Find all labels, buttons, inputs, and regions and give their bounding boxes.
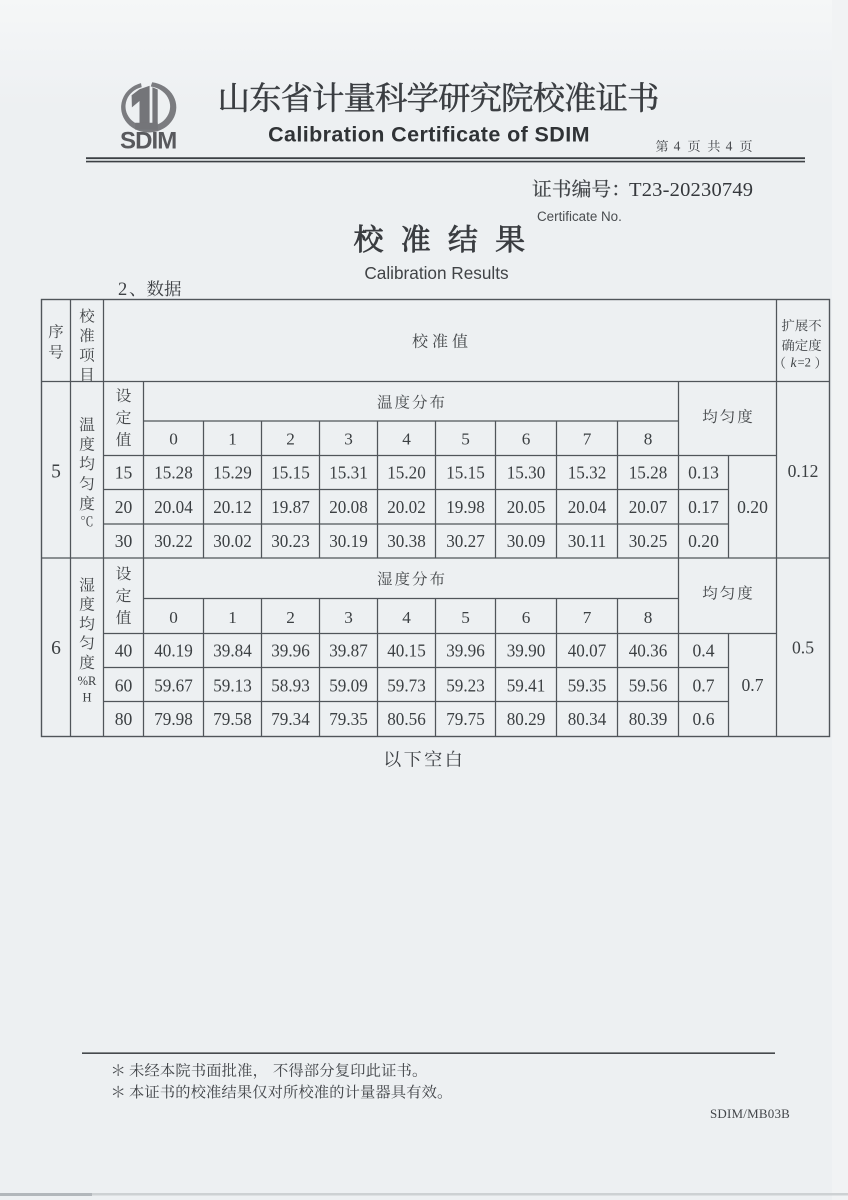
- svg-text:19.87: 19.87: [271, 497, 310, 517]
- svg-text:19.98: 19.98: [446, 497, 485, 517]
- svg-text:0.7: 0.7: [742, 675, 764, 695]
- svg-text:0.4: 0.4: [693, 641, 715, 661]
- svg-text:59.35: 59.35: [568, 676, 607, 696]
- svg-text:0.5: 0.5: [792, 637, 814, 657]
- svg-text:0: 0: [169, 608, 178, 627]
- svg-text:5: 5: [51, 462, 61, 483]
- svg-text:20.05: 20.05: [507, 497, 546, 517]
- svg-text:0.12: 0.12: [788, 461, 819, 481]
- svg-text:79.34: 79.34: [271, 709, 310, 729]
- svg-text:0.6: 0.6: [693, 709, 715, 729]
- svg-text:60: 60: [115, 676, 133, 696]
- svg-text:4: 4: [674, 138, 681, 153]
- svg-text:6: 6: [522, 608, 531, 627]
- svg-text:7: 7: [583, 608, 592, 627]
- svg-text:4: 4: [402, 430, 411, 449]
- svg-text:%R: %R: [78, 674, 97, 688]
- svg-text:30.09: 30.09: [507, 531, 546, 551]
- svg-text:15.20: 15.20: [387, 463, 426, 483]
- svg-text:40.15: 40.15: [387, 641, 426, 661]
- svg-text:Calibration Certificate of SDI: Calibration Certificate of SDIM: [268, 123, 590, 147]
- svg-text:30.11: 30.11: [568, 531, 607, 551]
- svg-text:Certificate No.: Certificate No.: [537, 209, 622, 224]
- svg-text:20.04: 20.04: [154, 497, 193, 517]
- svg-text:20.04: 20.04: [568, 497, 607, 517]
- svg-text:20.07: 20.07: [629, 497, 668, 517]
- svg-text:40.19: 40.19: [154, 641, 193, 661]
- svg-text:20: 20: [115, 497, 133, 517]
- svg-text:7: 7: [583, 430, 592, 449]
- svg-text:1: 1: [228, 608, 237, 627]
- svg-text:15.31: 15.31: [329, 463, 368, 483]
- svg-text:80.34: 80.34: [568, 709, 607, 729]
- svg-text:79.35: 79.35: [329, 709, 368, 729]
- svg-text:20.08: 20.08: [329, 497, 368, 517]
- svg-text:30.25: 30.25: [629, 531, 668, 551]
- svg-text:5: 5: [461, 608, 470, 627]
- svg-text:80.56: 80.56: [387, 709, 426, 729]
- svg-text:k: k: [791, 355, 798, 370]
- svg-text:30.19: 30.19: [329, 531, 368, 551]
- svg-text:0: 0: [169, 430, 178, 449]
- svg-text:0.20: 0.20: [737, 497, 768, 517]
- svg-text:15.28: 15.28: [154, 463, 193, 483]
- svg-text:59.13: 59.13: [213, 676, 252, 696]
- svg-text:30.22: 30.22: [154, 531, 193, 551]
- svg-text:3: 3: [344, 608, 353, 627]
- svg-text:30.02: 30.02: [213, 531, 252, 551]
- svg-text:39.96: 39.96: [271, 641, 310, 661]
- svg-text:59.09: 59.09: [329, 676, 368, 696]
- svg-text:0.7: 0.7: [693, 676, 715, 696]
- svg-text:30.23: 30.23: [271, 531, 310, 551]
- svg-text:15.28: 15.28: [629, 463, 668, 483]
- svg-text:59.56: 59.56: [629, 676, 668, 696]
- svg-text:0.20: 0.20: [688, 531, 719, 551]
- svg-text:1: 1: [228, 430, 237, 449]
- svg-text:20.12: 20.12: [213, 497, 252, 517]
- svg-text:59.73: 59.73: [387, 676, 426, 696]
- svg-text:4: 4: [726, 138, 733, 153]
- svg-text:59.23: 59.23: [446, 676, 485, 696]
- svg-text:40.36: 40.36: [629, 641, 668, 661]
- svg-text:15.32: 15.32: [568, 463, 607, 483]
- svg-text:20.02: 20.02: [387, 497, 426, 517]
- svg-text:30.38: 30.38: [387, 531, 426, 551]
- svg-text:59.41: 59.41: [507, 676, 546, 696]
- svg-text:15.15: 15.15: [446, 463, 485, 483]
- svg-text:=2: =2: [798, 355, 811, 369]
- svg-text:79.98: 79.98: [154, 709, 193, 729]
- svg-text:6: 6: [522, 430, 531, 449]
- svg-text:59.67: 59.67: [154, 676, 193, 696]
- svg-text:15.15: 15.15: [271, 463, 310, 483]
- svg-text:8: 8: [644, 608, 653, 627]
- svg-text:15.29: 15.29: [213, 463, 252, 483]
- svg-text:0.17: 0.17: [688, 497, 719, 517]
- svg-text:39.87: 39.87: [329, 641, 368, 661]
- svg-text:39.96: 39.96: [446, 641, 485, 661]
- svg-text:Calibration Results: Calibration Results: [364, 263, 508, 283]
- svg-text:79.58: 79.58: [213, 709, 252, 729]
- svg-text:SDIM/MB03B: SDIM/MB03B: [710, 1106, 790, 1121]
- svg-text:39.90: 39.90: [507, 641, 546, 661]
- svg-text:3: 3: [344, 430, 353, 449]
- svg-text:6: 6: [51, 638, 61, 659]
- svg-text:4: 4: [402, 608, 411, 627]
- svg-text:40: 40: [115, 641, 133, 661]
- svg-text:79.75: 79.75: [446, 709, 485, 729]
- svg-text:H: H: [82, 691, 91, 705]
- svg-text:80.29: 80.29: [507, 709, 546, 729]
- svg-text:58.93: 58.93: [271, 676, 310, 696]
- svg-text:30.27: 30.27: [446, 531, 485, 551]
- svg-text:40.07: 40.07: [568, 641, 607, 661]
- svg-text:5: 5: [461, 430, 470, 449]
- svg-text:80.39: 80.39: [629, 709, 668, 729]
- svg-text:15.30: 15.30: [507, 463, 546, 483]
- svg-text:T23-20230749: T23-20230749: [629, 179, 753, 201]
- svg-text:0.13: 0.13: [688, 463, 719, 483]
- svg-text:SDIM: SDIM: [120, 127, 176, 154]
- svg-text:30: 30: [115, 531, 133, 551]
- svg-text:15: 15: [115, 463, 133, 483]
- svg-text:2: 2: [286, 430, 295, 449]
- svg-text:80: 80: [115, 709, 133, 729]
- svg-text:8: 8: [644, 430, 653, 449]
- svg-text:2: 2: [286, 608, 295, 627]
- svg-text:2: 2: [118, 280, 127, 300]
- svg-text:39.84: 39.84: [213, 641, 252, 661]
